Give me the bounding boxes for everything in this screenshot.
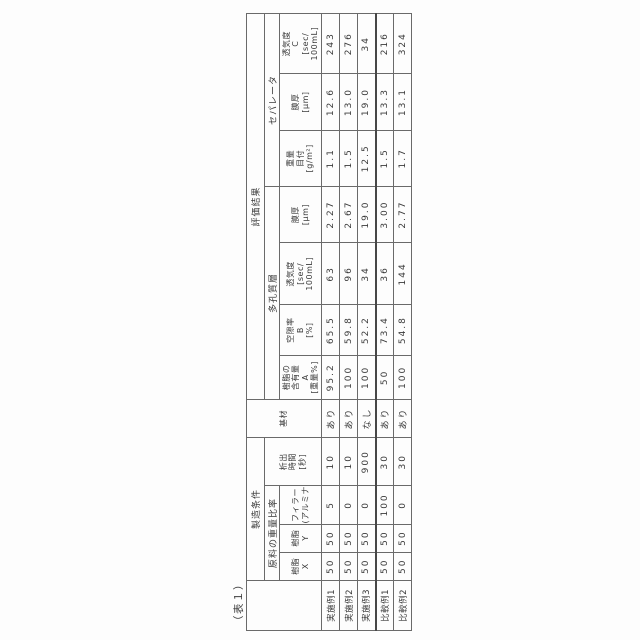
header-line: 含有量 xyxy=(291,356,301,399)
cell-resin-x-row1: 50 xyxy=(322,552,340,580)
col-header-basis-weight: 重量目付[g/m²] xyxy=(280,130,322,186)
cell-deposition-time-row4: 30 xyxy=(376,438,394,486)
table-row-3: 実施例350500900なし10052.23419.012.519.034 xyxy=(358,14,376,631)
col-header-film-thickness-separator: 膜厚[μm] xyxy=(280,74,322,130)
cell-filler-alumina-row1: 5 xyxy=(322,486,340,524)
cell-air-permeability-porous-row2: 96 xyxy=(340,243,358,305)
row-label-3: 実施例3 xyxy=(358,580,376,630)
row-label-5: 比較例2 xyxy=(394,580,412,630)
cell-film-thickness-porous-row5: 2.77 xyxy=(394,186,412,242)
cell-resin-x-row4: 50 xyxy=(376,552,394,580)
cell-film-thickness-separator-row3: 19.0 xyxy=(358,74,376,130)
header-line: 析出 xyxy=(279,438,289,485)
cell-resin-x-row5: 50 xyxy=(394,552,412,580)
cell-filler-alumina-row3: 0 xyxy=(358,486,376,524)
group-manufacturing-conditions: 製造条件 xyxy=(247,438,265,581)
cell-porosity-b-row5: 54.8 xyxy=(394,305,412,355)
cell-resin-y-row2: 50 xyxy=(340,524,358,552)
header-line: 膜厚 xyxy=(291,187,301,242)
rotated-landscape-content: （表１） 製造条件 基材 評価結果 原料の重量比率 析出時間[秒] 多孔質層 xyxy=(0,0,640,640)
header-line: 空隙率 xyxy=(286,306,296,355)
group-evaluation-results: 評価結果 xyxy=(247,14,265,400)
cell-film-thickness-porous-row3: 19.0 xyxy=(358,186,376,242)
col-header-resin-y: 樹脂Y xyxy=(280,524,322,552)
cell-substrate-row5: あり xyxy=(394,399,412,437)
col-header-substrate: 基材 xyxy=(247,399,322,437)
header-line: 樹脂 xyxy=(291,553,301,580)
row-label-1: 実施例1 xyxy=(322,580,340,630)
col-header-air-permeability-c: 透気度C[sec/100mL] xyxy=(280,14,322,74)
header-line: 目付 xyxy=(296,131,306,186)
cell-deposition-time-row2: 10 xyxy=(340,438,358,486)
header-line: 膜厚 xyxy=(291,74,301,129)
cell-film-thickness-separator-row2: 13.0 xyxy=(340,74,358,130)
col-header-air-permeability-porous: 透気度[sec/100mL] xyxy=(280,243,322,305)
cell-basis-weight-row4: 1.5 xyxy=(376,130,394,186)
cell-resin-content-a-row1: 95.2 xyxy=(322,355,340,399)
header-row-groups: 製造条件 基材 評価結果 xyxy=(247,14,265,631)
cell-air-permeability-c-row1: 243 xyxy=(322,14,340,74)
cell-air-permeability-c-row2: 276 xyxy=(340,14,358,74)
col-header-film-thickness-porous: 膜厚[μm] xyxy=(280,186,322,242)
header-row-subgroups: 原料の重量比率 析出時間[秒] 多孔質層 セパレータ xyxy=(265,14,280,631)
cell-deposition-time-row3: 900 xyxy=(358,438,376,486)
cell-film-thickness-separator-row5: 13.1 xyxy=(394,74,412,130)
col-header-resin-x: 樹脂X xyxy=(280,552,322,580)
col-header-deposition-time: 析出時間[秒] xyxy=(265,438,322,486)
table-container: 製造条件 基材 評価結果 原料の重量比率 析出時間[秒] 多孔質層 セパレータ … xyxy=(246,13,412,631)
header-line: [g/m²] xyxy=(305,131,315,186)
header-line: [重量%] xyxy=(310,356,320,399)
header-line: [sec/ xyxy=(296,243,306,304)
cell-porosity-b-row1: 65.5 xyxy=(322,305,340,355)
cell-resin-y-row5: 50 xyxy=(394,524,412,552)
cell-filler-alumina-row5: 0 xyxy=(394,486,412,524)
cell-porosity-b-row2: 59.8 xyxy=(340,305,358,355)
table-header: 製造条件 基材 評価結果 原料の重量比率 析出時間[秒] 多孔質層 セパレータ … xyxy=(247,14,322,631)
cell-air-permeability-porous-row1: 63 xyxy=(322,243,340,305)
header-line: 樹脂 xyxy=(291,525,301,552)
col-header-porosity-b: 空隙率B[%] xyxy=(280,305,322,355)
header-line: [sec/ xyxy=(301,14,311,73)
cell-basis-weight-row5: 1.7 xyxy=(394,130,412,186)
header-line: 樹脂の xyxy=(282,356,292,399)
cell-resin-x-row2: 50 xyxy=(340,552,358,580)
header-line: C xyxy=(291,14,301,73)
header-line: [μm] xyxy=(301,74,311,129)
cell-substrate-row1: あり xyxy=(322,399,340,437)
cell-resin-y-row3: 50 xyxy=(358,524,376,552)
table-caption: （表１） xyxy=(231,578,246,626)
cell-substrate-row3: なし xyxy=(358,399,376,437)
cell-resin-content-a-row3: 100 xyxy=(358,355,376,399)
cell-film-thickness-separator-row4: 13.3 xyxy=(376,74,394,130)
header-line: [μm] xyxy=(301,187,311,242)
header-line: 基材 xyxy=(279,400,289,437)
table-body: 実施例15050510あり95.265.5632.271.112.6243実施例… xyxy=(322,14,412,631)
corner-cell xyxy=(247,580,322,630)
cell-film-thickness-porous-row1: 2.27 xyxy=(322,186,340,242)
table-row-2: 実施例25050010あり10059.8962.671.513.0276 xyxy=(340,14,358,631)
cell-air-permeability-c-row3: 34 xyxy=(358,14,376,74)
results-table: 製造条件 基材 評価結果 原料の重量比率 析出時間[秒] 多孔質層 セパレータ … xyxy=(246,13,412,631)
cell-air-permeability-c-row4: 216 xyxy=(376,14,394,74)
group-separator: セパレータ xyxy=(265,14,280,187)
cell-substrate-row2: あり xyxy=(340,399,358,437)
header-line: (アルミナ) xyxy=(301,486,311,523)
header-line: 透気度 xyxy=(282,14,292,73)
header-line: 時間 xyxy=(288,438,298,485)
header-line: [秒] xyxy=(298,438,308,485)
group-raw-material-weight-ratio: 原料の重量比率 xyxy=(265,486,280,580)
cell-porosity-b-row3: 52.2 xyxy=(358,305,376,355)
header-line: B xyxy=(296,306,306,355)
cell-filler-alumina-row4: 100 xyxy=(376,486,394,524)
header-line: 100mL] xyxy=(310,14,320,73)
cell-air-permeability-porous-row4: 36 xyxy=(376,243,394,305)
col-header-filler-alumina: フィラー(アルミナ) xyxy=(280,486,322,524)
cell-basis-weight-row2: 1.5 xyxy=(340,130,358,186)
cell-filler-alumina-row2: 0 xyxy=(340,486,358,524)
cell-film-thickness-porous-row4: 3.00 xyxy=(376,186,394,242)
cell-porosity-b-row4: 73.4 xyxy=(376,305,394,355)
group-porous-layer: 多孔質層 xyxy=(265,186,280,399)
col-header-resin-content-a: 樹脂の含有量A[重量%] xyxy=(280,355,322,399)
table-row-1: 実施例15050510あり95.265.5632.271.112.6243 xyxy=(322,14,340,631)
row-label-2: 実施例2 xyxy=(340,580,358,630)
cell-film-thickness-porous-row2: 2.67 xyxy=(340,186,358,242)
cell-air-permeability-porous-row5: 144 xyxy=(394,243,412,305)
cell-resin-y-row4: 50 xyxy=(376,524,394,552)
cell-basis-weight-row3: 12.5 xyxy=(358,130,376,186)
cell-substrate-row4: あり xyxy=(376,399,394,437)
cell-resin-x-row3: 50 xyxy=(358,552,376,580)
header-line: [%] xyxy=(305,306,315,355)
cell-resin-y-row1: 50 xyxy=(322,524,340,552)
header-line: X xyxy=(301,553,311,580)
header-line: 透気度 xyxy=(286,243,296,304)
row-label-4: 比較例1 xyxy=(376,580,394,630)
cell-deposition-time-row5: 30 xyxy=(394,438,412,486)
header-line: 重量 xyxy=(286,131,296,186)
header-line: Y xyxy=(301,525,311,552)
scanned-document-page: （表１） 製造条件 基材 評価結果 原料の重量比率 析出時間[秒] 多孔質層 xyxy=(0,0,640,640)
header-row-columns: 樹脂X 樹脂Y フィラー(アルミナ) 樹脂の含有量A[重量%] 空隙率B[%] … xyxy=(280,14,322,631)
cell-film-thickness-separator-row1: 12.6 xyxy=(322,74,340,130)
cell-resin-content-a-row4: 50 xyxy=(376,355,394,399)
table-row-4: 比較例1505010030あり5073.4363.001.513.3216 xyxy=(376,14,394,631)
header-line: A xyxy=(301,356,311,399)
cell-air-permeability-porous-row3: 34 xyxy=(358,243,376,305)
cell-basis-weight-row1: 1.1 xyxy=(322,130,340,186)
header-line: 100mL] xyxy=(305,243,315,304)
header-line: フィラー xyxy=(291,486,301,523)
cell-deposition-time-row1: 10 xyxy=(322,438,340,486)
cell-air-permeability-c-row5: 324 xyxy=(394,14,412,74)
table-row-5: 比較例25050030あり10054.81442.771.713.1324 xyxy=(394,14,412,631)
cell-resin-content-a-row2: 100 xyxy=(340,355,358,399)
cell-resin-content-a-row5: 100 xyxy=(394,355,412,399)
